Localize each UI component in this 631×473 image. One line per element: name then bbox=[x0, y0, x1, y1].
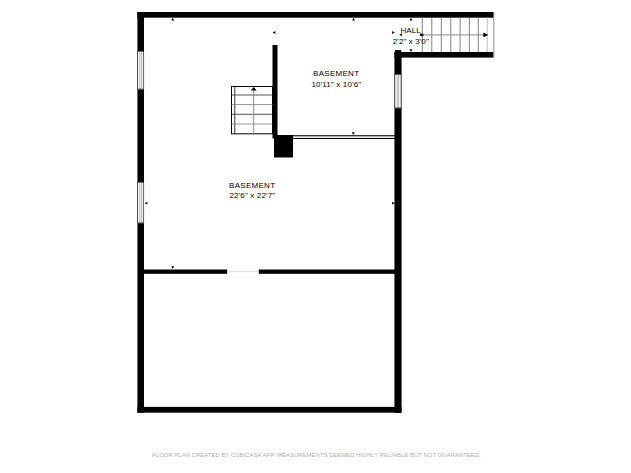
svg-text:FLOOR PLAN CREATED BY CUBICASA: FLOOR PLAN CREATED BY CUBICASA APP. MEAS… bbox=[152, 452, 481, 458]
svg-text:2'2" x 3'0": 2'2" x 3'0" bbox=[393, 37, 429, 46]
svg-text:HALL: HALL bbox=[400, 26, 421, 35]
svg-text:22'6" x 22'7": 22'6" x 22'7" bbox=[229, 191, 275, 200]
svg-text:10'11" x 10'6": 10'11" x 10'6" bbox=[311, 80, 361, 89]
svg-text:BASEMENT: BASEMENT bbox=[229, 181, 275, 190]
svg-text:BASEMENT: BASEMENT bbox=[313, 69, 359, 78]
